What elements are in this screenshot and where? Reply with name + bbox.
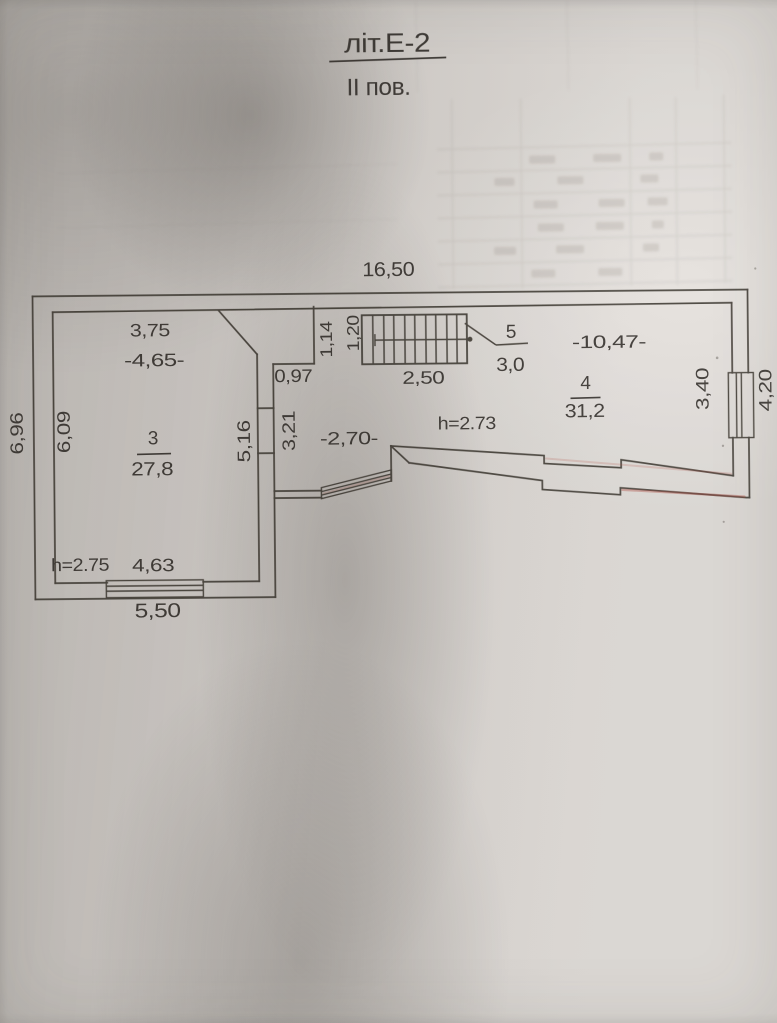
stair-label-leader xyxy=(465,323,496,345)
room3-ceiling-height: h=2.75 xyxy=(51,555,110,576)
floorplan-photo: літ.Е-2 ІІ пов. xyxy=(0,0,777,1023)
outer-right-wall-lower xyxy=(749,438,750,498)
room3-bottom-inner-b xyxy=(203,581,259,582)
dim-room3-bottom-outer: 5,50 xyxy=(134,600,181,622)
room3-number: 3 xyxy=(148,428,158,449)
dim-stair-flight-a: 1,14 xyxy=(317,322,336,358)
room4-wall-left-cap xyxy=(391,446,409,463)
stair-zone-left-wall xyxy=(314,307,315,364)
dim-hall-niche-width: 0,97 xyxy=(274,366,313,386)
dim-room4-width: -10,47- xyxy=(572,332,647,353)
stair-label-underline xyxy=(496,343,528,345)
room4-number: 4 xyxy=(580,373,591,394)
dim-room4-right-height: 3,40 xyxy=(692,367,712,410)
room4-window xyxy=(728,373,754,438)
stair-room-number: 5 xyxy=(506,322,516,343)
dim-room3-width-inner: -4,65- xyxy=(124,350,185,371)
inner-top-wall xyxy=(53,303,732,313)
room4-south-wall-inner xyxy=(391,443,733,479)
room4-area: 31,2 xyxy=(565,401,605,422)
inner-right-wall-upper xyxy=(732,303,733,373)
dim-stair-length: 2,50 xyxy=(402,367,445,387)
title-building: літ.Е-2 xyxy=(344,28,430,59)
floorplan-drawing: літ.Е-2 ІІ пов. xyxy=(0,0,777,1023)
outer-left-wall xyxy=(33,296,36,599)
dim-room3-right-height: 5,16 xyxy=(234,420,254,463)
dim-hall-depth: 3,21 xyxy=(279,410,299,451)
dim-hall-width: -2,70- xyxy=(320,428,379,449)
stair-room-area: 3,0 xyxy=(496,355,524,376)
room3-right-outer-wall xyxy=(273,364,275,597)
room3-number-underline xyxy=(137,454,171,455)
dim-stair-flight-b: 1,20 xyxy=(344,315,363,351)
dim-room3-top-width: 3,75 xyxy=(130,320,171,340)
dim-room3-bottom-inner: 4,63 xyxy=(132,555,175,575)
outer-right-wall-upper xyxy=(747,290,748,373)
hall-ceiling-height: h=2.73 xyxy=(438,413,497,434)
outer-top-wall xyxy=(33,290,748,297)
windows xyxy=(104,373,755,598)
dim-room3-left-height: 6,09 xyxy=(54,411,74,454)
title-floor: ІІ пов. xyxy=(346,74,410,102)
room3-window xyxy=(106,580,203,598)
dim-overall-left-height: 6,96 xyxy=(7,412,27,455)
room3-right-inner-wall xyxy=(257,354,259,581)
stair-direction-line xyxy=(375,339,470,340)
floorplan-sheet: літ.Е-2 ІІ пов. xyxy=(0,0,777,1023)
room4-number-underline xyxy=(571,397,601,398)
dim-overall-width: 16,50 xyxy=(362,259,414,282)
dim-overall-right-height: 4,20 xyxy=(755,369,775,412)
room3-area: 27,8 xyxy=(131,459,173,480)
room3-chamfer xyxy=(219,310,257,354)
stair-direction-end-dot xyxy=(467,337,472,342)
title-block: літ.Е-2 ІІ пов. xyxy=(329,27,447,101)
